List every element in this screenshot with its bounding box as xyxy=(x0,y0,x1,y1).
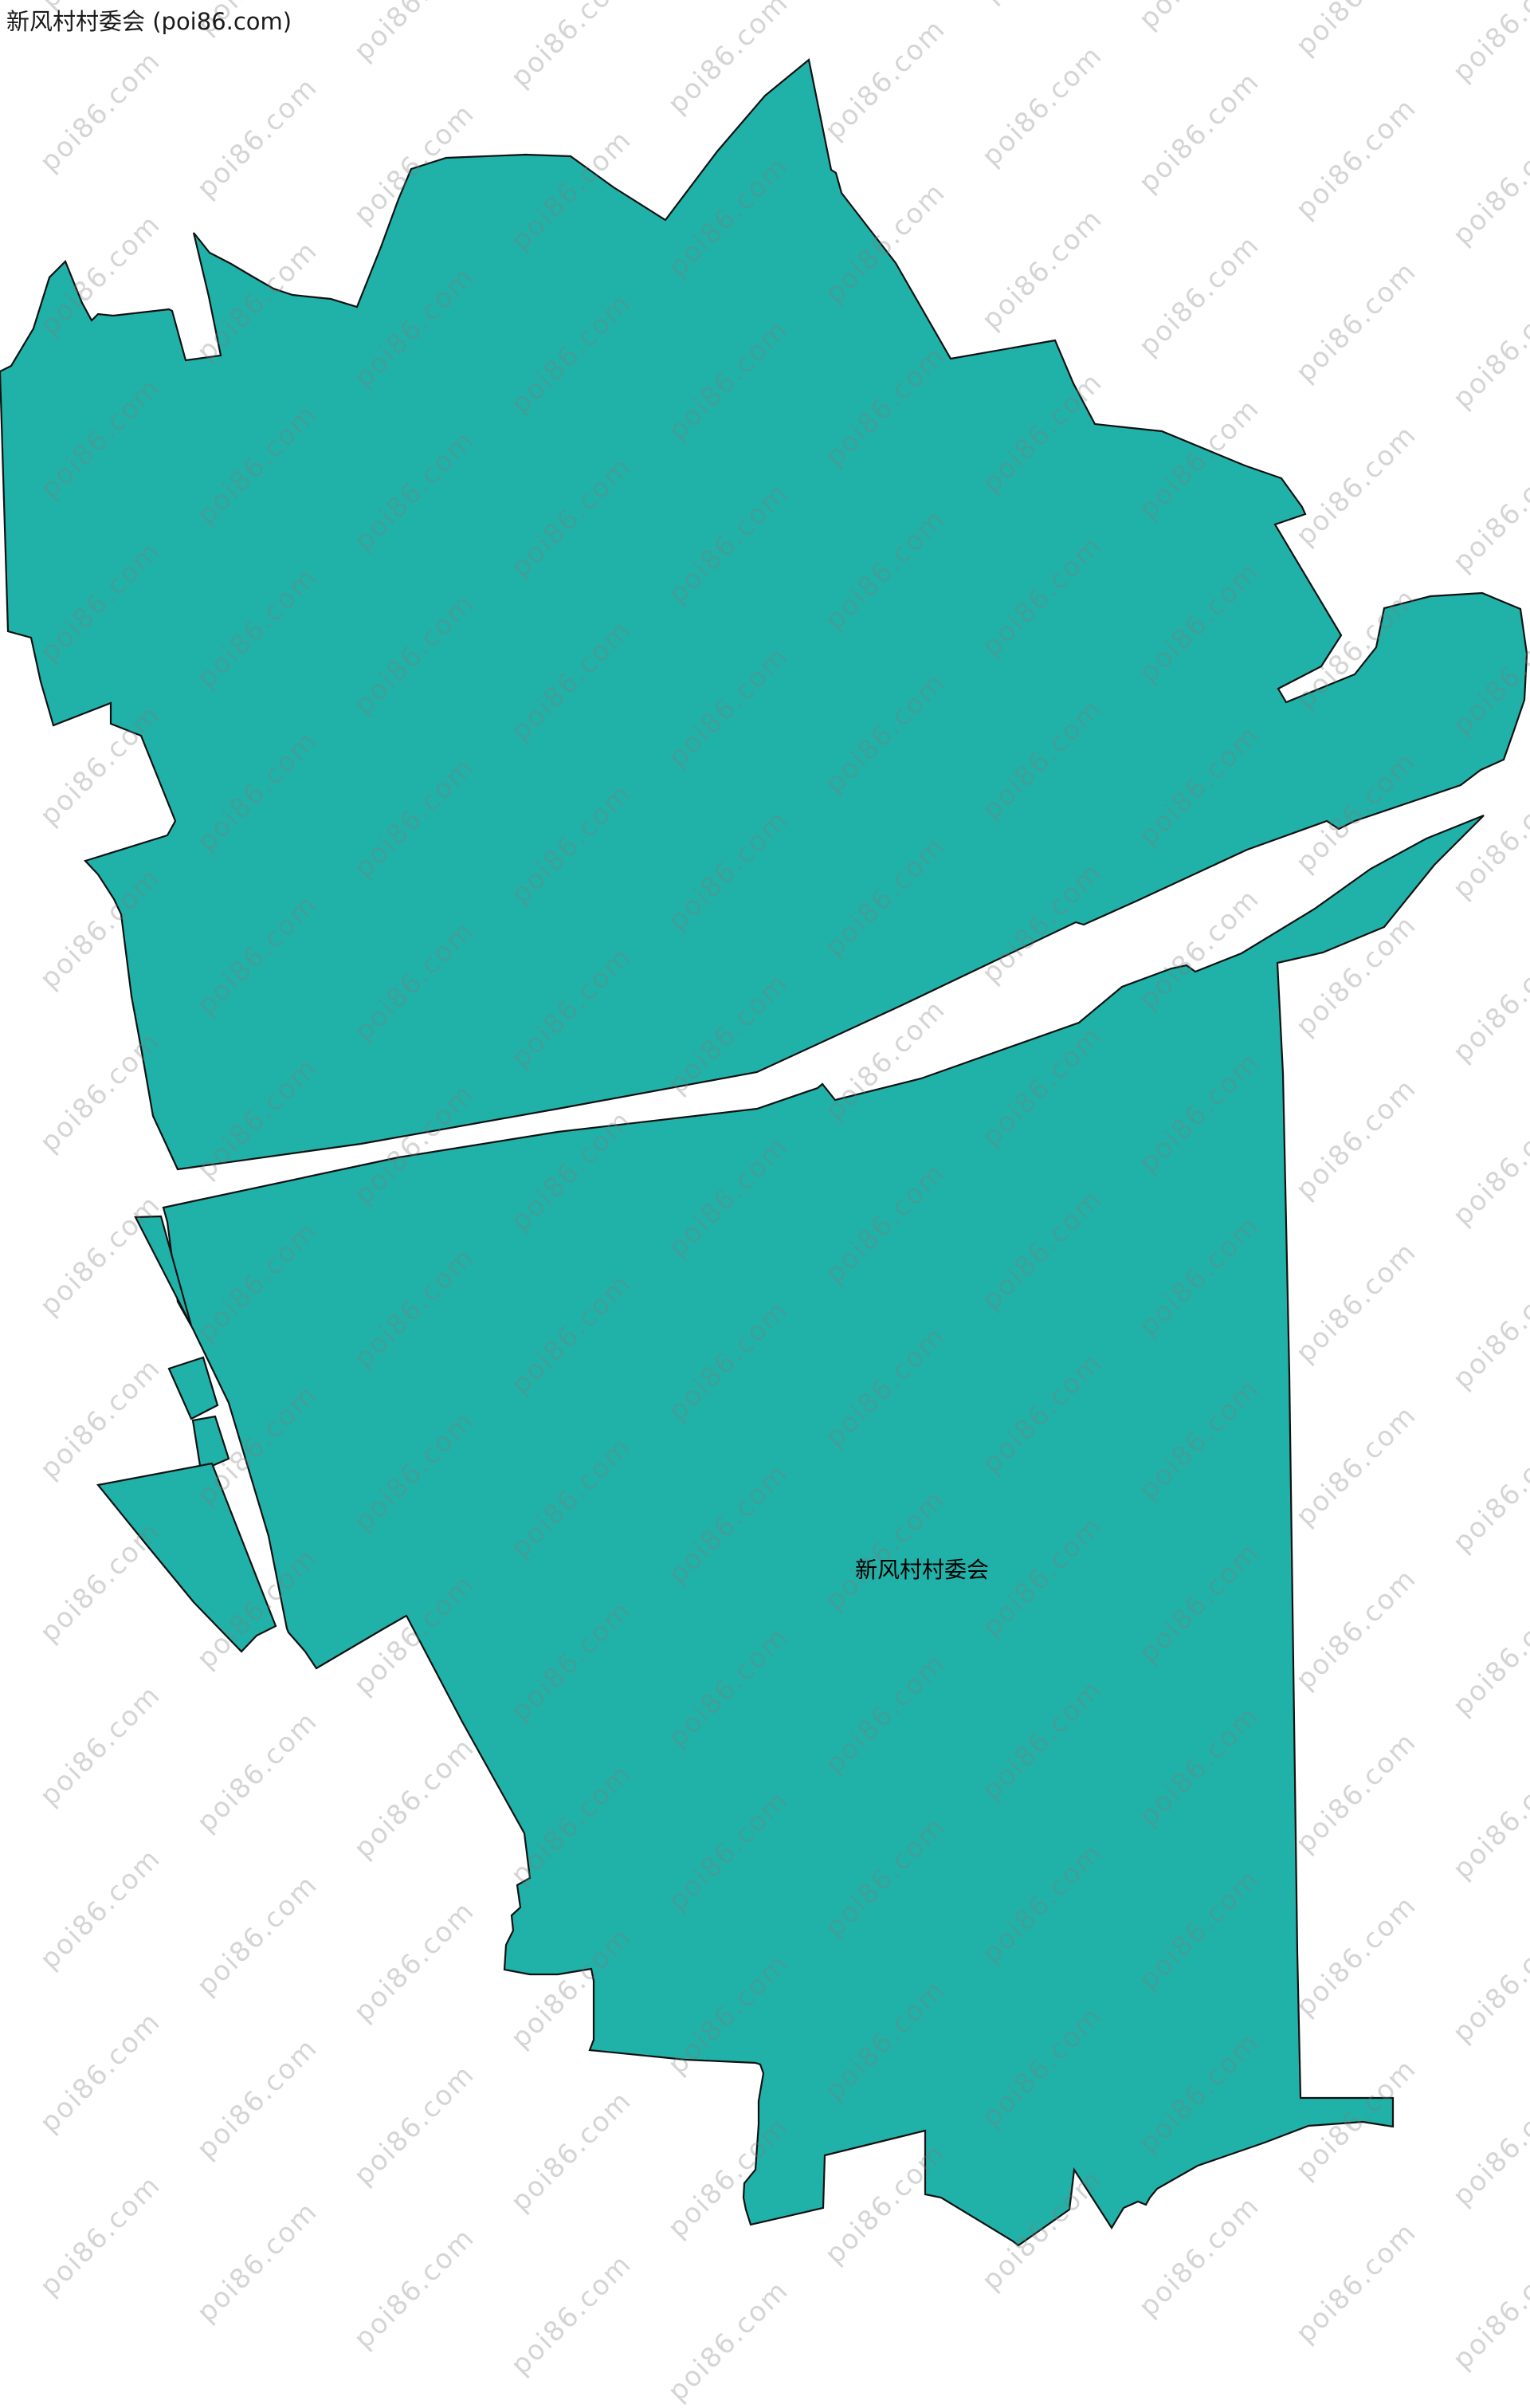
map-canvas: poi86.compoi86.compoi86.compoi86.compoi8… xyxy=(0,0,1530,2265)
region-sliver-c xyxy=(193,1416,229,1471)
watermark-text: poi86.com xyxy=(504,2248,637,2381)
region-label: 新风村村委会 xyxy=(855,1553,989,1585)
region-upper-polygon xyxy=(0,60,1527,1169)
page-title: 新风村村委会 (poi86.com) xyxy=(6,3,292,37)
watermark-text: poi86.com xyxy=(661,2274,794,2407)
boundary-map-svg xyxy=(0,0,1530,2265)
region-sliver-d xyxy=(98,1463,276,1652)
